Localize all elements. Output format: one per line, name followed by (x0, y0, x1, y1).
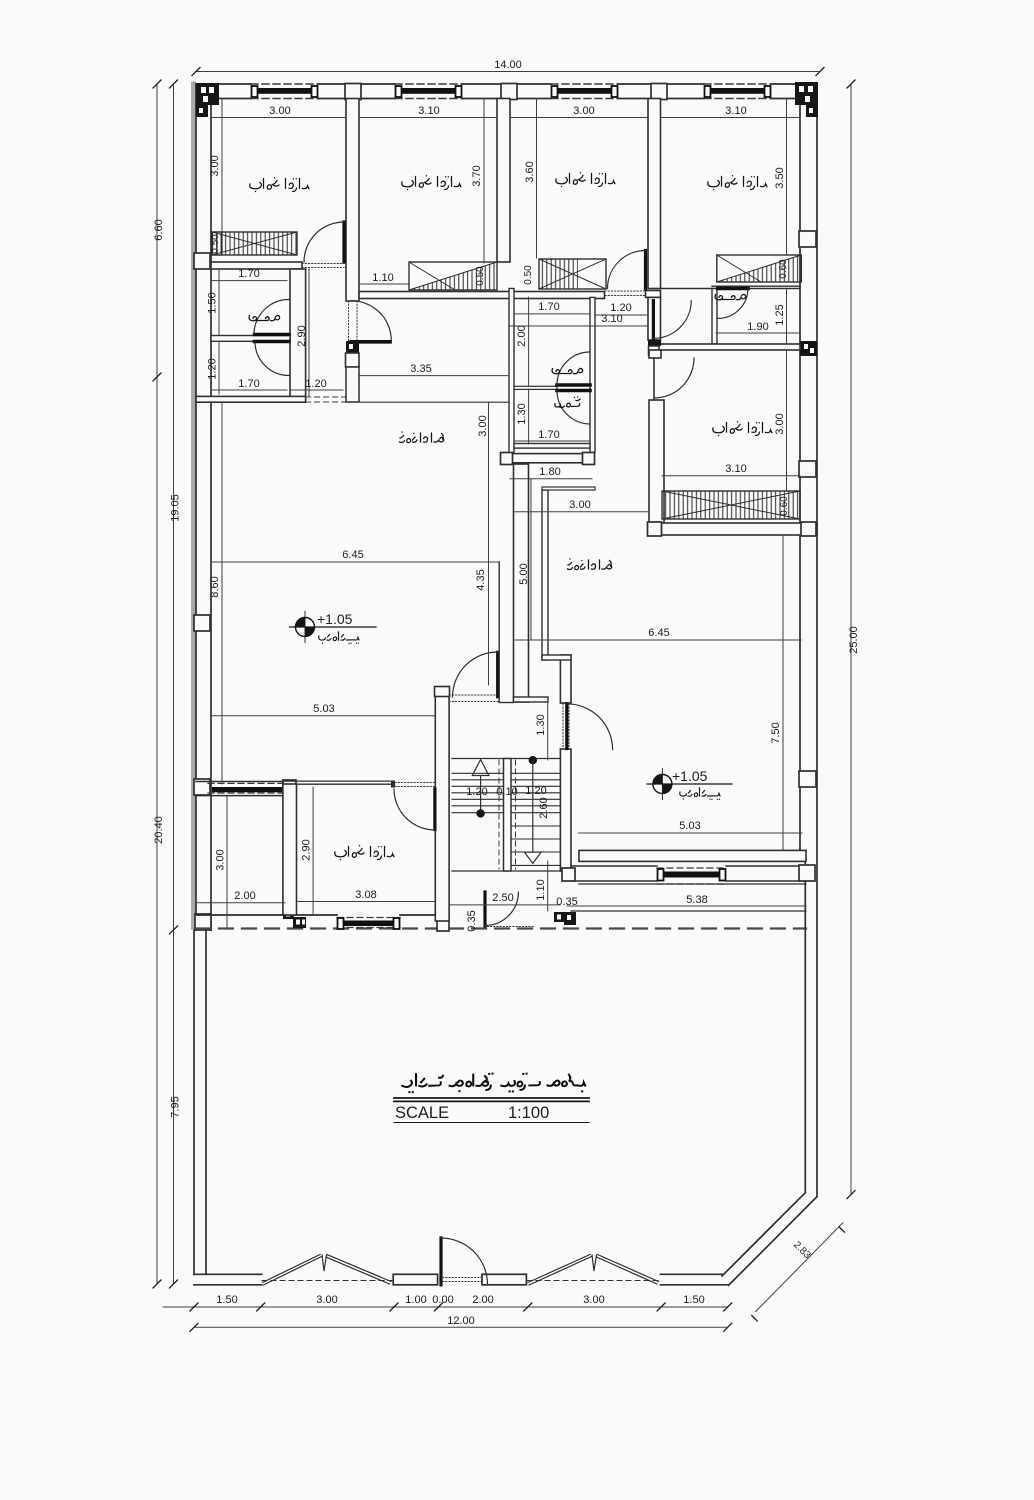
svg-text:3.00: 3.00 (477, 415, 489, 436)
svg-text:3.00: 3.00 (569, 499, 590, 511)
svg-text:19.05: 19.05 (170, 494, 182, 522)
svg-text:3.08: 3.08 (355, 889, 376, 901)
svg-text:2.00: 2.00 (472, 1294, 493, 1306)
svg-text:1.80: 1.80 (539, 466, 560, 478)
svg-text:1.70: 1.70 (538, 429, 559, 441)
svg-text:25.00: 25.00 (848, 626, 860, 654)
svg-text:1.20: 1.20 (305, 378, 326, 390)
svg-text:20.40: 20.40 (153, 816, 165, 844)
svg-text:5.03: 5.03 (679, 820, 700, 832)
svg-text:5.00: 5.00 (518, 563, 530, 584)
svg-text:3.10: 3.10 (418, 105, 439, 117)
svg-text:7.50: 7.50 (770, 722, 782, 743)
svg-text:7.95: 7.95 (170, 1096, 182, 1117)
svg-text:3.00: 3.00 (215, 849, 227, 870)
svg-text:1.50: 1.50 (683, 1294, 704, 1306)
svg-text:3.10: 3.10 (601, 313, 622, 325)
svg-text:0.10: 0.10 (496, 786, 517, 798)
svg-text:+1.05: +1.05 (317, 611, 353, 627)
svg-text:SCALE: SCALE (395, 1104, 449, 1122)
svg-text:1.10: 1.10 (372, 272, 393, 284)
svg-text:3.35: 3.35 (410, 363, 431, 375)
svg-text:1.50: 1.50 (216, 1294, 237, 1306)
svg-text:1.70: 1.70 (538, 301, 559, 313)
svg-text:0.50: 0.50 (523, 265, 534, 285)
svg-text:1:100: 1:100 (508, 1104, 549, 1122)
svg-text:2.00: 2.00 (516, 325, 528, 346)
svg-text:1.10: 1.10 (535, 879, 547, 900)
svg-text:3.10: 3.10 (725, 105, 746, 117)
svg-text:3.00: 3.00 (209, 155, 221, 176)
svg-text:0.60: 0.60 (779, 496, 790, 516)
svg-text:1.20: 1.20 (466, 786, 487, 798)
svg-text:6.60: 6.60 (153, 219, 165, 240)
svg-text:3.00: 3.00 (774, 413, 786, 434)
svg-text:0.00: 0.00 (432, 1294, 453, 1306)
svg-text:0.60: 0.60 (778, 259, 789, 279)
svg-text:6.45: 6.45 (648, 627, 669, 639)
svg-text:14.00: 14.00 (494, 59, 522, 71)
svg-text:1.00: 1.00 (405, 1294, 426, 1306)
svg-text:2.90: 2.90 (301, 839, 313, 860)
svg-text:3.00: 3.00 (583, 1294, 604, 1306)
svg-text:3.50: 3.50 (774, 167, 786, 188)
svg-text:3.70: 3.70 (471, 165, 483, 186)
svg-text:3.00: 3.00 (573, 105, 594, 117)
svg-text:1.30: 1.30 (516, 403, 528, 424)
svg-text:2.60: 2.60 (538, 797, 550, 818)
svg-text:5.03: 5.03 (313, 703, 334, 715)
svg-text:1.20: 1.20 (207, 358, 219, 379)
svg-text:1.20: 1.20 (525, 785, 546, 797)
svg-text:2.90: 2.90 (296, 325, 308, 346)
svg-text:0.35: 0.35 (466, 910, 478, 931)
svg-text:3.00: 3.00 (269, 105, 290, 117)
svg-text:1.25: 1.25 (774, 304, 786, 325)
svg-text:1.70: 1.70 (238, 268, 259, 280)
svg-text:0.35: 0.35 (556, 896, 577, 908)
svg-text:2.50: 2.50 (492, 892, 513, 904)
svg-text:3.10: 3.10 (725, 463, 746, 475)
svg-text:1.50: 1.50 (207, 292, 219, 313)
svg-text:5.38: 5.38 (686, 894, 707, 906)
svg-text:+1.05: +1.05 (672, 768, 708, 784)
svg-text:12.00: 12.00 (447, 1315, 475, 1327)
svg-text:4.35: 4.35 (475, 569, 487, 590)
svg-text:8.60: 8.60 (209, 576, 221, 597)
svg-text:1.70: 1.70 (238, 378, 259, 390)
svg-text:2.00: 2.00 (234, 890, 255, 902)
svg-text:1.90: 1.90 (747, 321, 768, 333)
svg-text:1.30: 1.30 (535, 714, 547, 735)
svg-text:3.60: 3.60 (524, 161, 536, 182)
svg-text:0.50: 0.50 (210, 234, 221, 254)
svg-text:0.50: 0.50 (475, 266, 486, 286)
svg-text:6.45: 6.45 (342, 549, 363, 561)
svg-text:3.00: 3.00 (316, 1294, 337, 1306)
